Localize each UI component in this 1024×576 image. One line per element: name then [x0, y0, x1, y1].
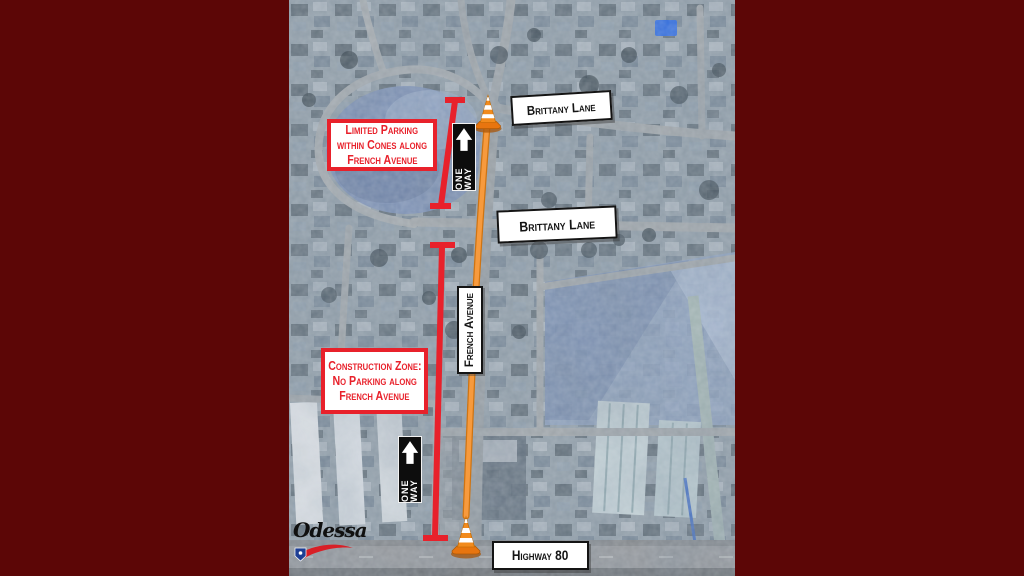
street-label-brittany-lane-mid: Brittany Lane	[496, 205, 617, 243]
note-line: No Parking along	[332, 374, 416, 389]
odessa-logo-text: Odessa	[293, 519, 363, 541]
note-line: within Cones along	[337, 138, 427, 153]
construction-zone-note: Construction Zone: No Parking along Fren…	[321, 348, 428, 414]
street-label-text: Highway 80	[512, 548, 568, 563]
street-label-text: Brittany Lane	[527, 98, 597, 117]
street-label-text: Brittany Lane	[519, 215, 596, 234]
up-arrow-icon	[454, 126, 474, 152]
odessa-logo-swoosh-icon	[293, 541, 357, 565]
note-line: French Avenue	[347, 153, 417, 168]
up-arrow-icon	[400, 439, 420, 465]
street-label-highway-80: Highway 80	[492, 541, 589, 570]
construction-notice-graphic: Limited Parking within Cones along Frenc…	[0, 0, 1024, 576]
note-line: Limited Parking	[346, 123, 419, 138]
note-line: Construction Zone:	[328, 359, 421, 374]
one-way-text: ONE WAY	[455, 152, 473, 190]
satellite-map-image	[289, 0, 735, 576]
odessa-logo: Odessa	[293, 519, 363, 571]
street-label-text: French Avenue	[464, 293, 476, 367]
limited-parking-note: Limited Parking within Cones along Frenc…	[327, 119, 437, 171]
map-texture	[289, 0, 735, 576]
one-way-text: ONE WAY	[401, 465, 419, 502]
note-line: French Avenue	[339, 389, 409, 404]
street-label-brittany-lane-top: Brittany Lane	[510, 90, 613, 126]
satellite-map	[289, 0, 735, 576]
street-label-french-avenue: French Avenue	[457, 286, 483, 374]
one-way-sign: ONE WAY	[398, 436, 422, 503]
one-way-sign: ONE WAY	[452, 123, 476, 191]
